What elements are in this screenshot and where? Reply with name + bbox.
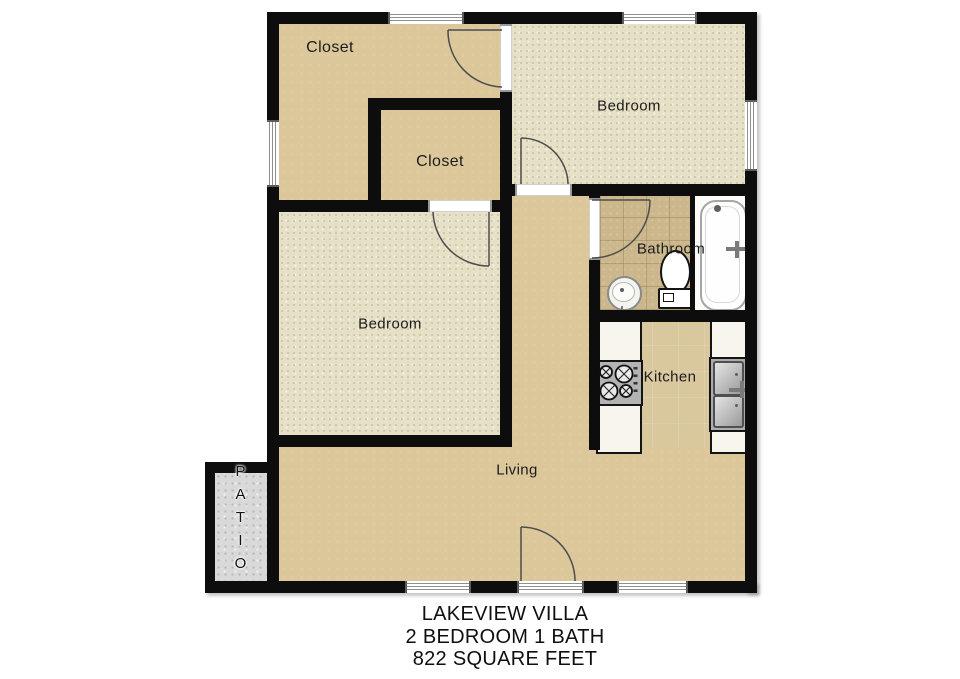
bathroom-label: Bathroom bbox=[637, 241, 705, 258]
window-top-bedroom bbox=[622, 12, 697, 24]
caption-area: 822 SQUARE FEET bbox=[406, 648, 605, 671]
bedroom-center-label: Bedroom bbox=[358, 316, 422, 333]
plan-caption: LAKEVIEW VILLA 2 BEDROOM 1 BATH 822 SQUA… bbox=[406, 603, 605, 671]
caption-title: LAKEVIEW VILLA bbox=[406, 603, 605, 626]
front-door-sill bbox=[517, 581, 584, 593]
kitchen-counter-left-bottom bbox=[596, 401, 642, 454]
kitchen-counter-right-top bbox=[710, 317, 747, 362]
kitchen-sink-drain-bottom bbox=[735, 404, 738, 407]
wall-closet-small-left bbox=[368, 98, 381, 212]
bathroom-sink-drain bbox=[620, 288, 624, 292]
wall-bedroom-center-bottom bbox=[279, 435, 512, 447]
kitchen-sink-basin-bottom bbox=[713, 395, 744, 428]
floor-plan: Closet Closet Bedroom Bedroom Bathroom K… bbox=[0, 0, 960, 679]
kitchen-faucet-handle bbox=[740, 381, 744, 398]
doorway-closet-small bbox=[428, 200, 492, 212]
living-label: Living bbox=[496, 462, 538, 479]
kitchen-counter-left-top bbox=[596, 317, 642, 366]
window-top-closet bbox=[388, 12, 464, 24]
doorway-bathroom bbox=[589, 198, 600, 260]
closet-large-label: Closet bbox=[306, 39, 354, 57]
kitchen-label: Kitchen bbox=[644, 369, 697, 386]
closet-small-label: Closet bbox=[416, 153, 464, 171]
window-left-closet bbox=[267, 120, 279, 187]
doorway-closet-bedroom bbox=[500, 24, 512, 92]
wall-bath-kitchen-divider bbox=[589, 310, 757, 322]
bathroom-sink-basin bbox=[612, 282, 635, 302]
patio-label: PATIO bbox=[232, 463, 250, 578]
window-bottom-living-left bbox=[405, 581, 471, 593]
window-right-bedroom bbox=[745, 100, 757, 171]
caption-rooms: 2 BEDROOM 1 BATH bbox=[406, 626, 605, 649]
toilet-flush-latch bbox=[663, 293, 674, 302]
bedroom-top-label: Bedroom bbox=[597, 98, 661, 115]
bathtub-faucet-handle bbox=[735, 241, 739, 258]
doorway-bedroom-top bbox=[515, 184, 572, 196]
kitchen-sink-drain-top bbox=[735, 373, 738, 376]
wall-closet-small-top bbox=[368, 98, 512, 110]
wall-left bbox=[267, 12, 279, 593]
stove bbox=[595, 360, 643, 406]
bathtub-drain bbox=[714, 205, 721, 212]
window-bottom-living-right bbox=[617, 581, 688, 593]
wall-patio-left bbox=[205, 462, 215, 581]
hall-floor bbox=[512, 196, 589, 447]
